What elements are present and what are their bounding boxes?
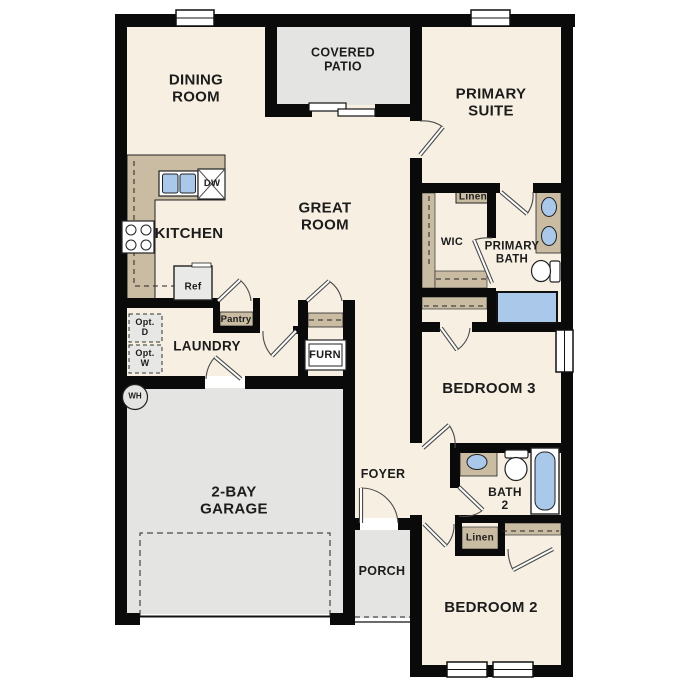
room-label-garage: 2-BAY GARAGE <box>200 485 268 518</box>
appliance-label-dishwasher: DW <box>204 179 220 189</box>
wall-wic-bath-divider <box>487 193 496 238</box>
room-label-primary-suite: PRIMARY SUITE <box>456 87 527 120</box>
kitchen-sink-fixture <box>159 171 198 196</box>
room-label-great-room: GREAT ROOM <box>299 201 352 234</box>
appliance-label-water-heater: WH <box>128 393 141 402</box>
wall-garage-stub-left <box>115 613 140 625</box>
primary-tub-fixture <box>497 292 557 323</box>
bedroom2-closet-shelf <box>500 523 561 535</box>
floor-plan-drawing <box>0 0 687 687</box>
room-label-laundry: LAUNDRY <box>173 340 241 355</box>
wall-patio-left <box>265 14 277 117</box>
stove-fixture <box>122 221 154 253</box>
window-primary-suite <box>471 10 510 26</box>
wall-pantry-bottom <box>213 326 260 333</box>
wall-bottom-bedroom2 <box>410 665 573 677</box>
wall-suite-bottom-b <box>533 183 561 193</box>
room-label-kitchen: KITCHEN <box>155 226 224 243</box>
closet-label-linen-primary: Linen <box>459 192 487 203</box>
wall-linen-right <box>498 523 505 551</box>
wall-suite-left-upper <box>410 14 422 121</box>
wic-shelf-bottom <box>435 271 487 288</box>
wall-patio-bottom-a <box>265 104 312 117</box>
room-label-covered-patio: COVERED PATIO <box>311 46 375 74</box>
bedroom3-closet-shelf <box>422 297 487 309</box>
window-bedroom2-left <box>447 662 487 677</box>
room-label-foyer: FOYER <box>361 468 406 482</box>
wall-bath2-left <box>450 443 460 488</box>
closet-label-pantry: Pantry <box>221 315 252 325</box>
room-label-bath2: BATH 2 <box>488 486 522 512</box>
appliance-label-opt-washer: Opt. W <box>135 349 154 369</box>
window-bedroom3 <box>556 330 573 372</box>
room-label-bedroom3: BEDROOM 3 <box>442 381 536 398</box>
bath2-toilet-fixture <box>505 450 528 481</box>
wall-linen-bottom <box>455 549 505 556</box>
wall-garage-stub-right <box>330 613 355 625</box>
closet-label-furnace: FURN <box>309 349 341 361</box>
appliance-label-opt-dryer: Opt. D <box>135 318 154 338</box>
bath2-sink-fixture <box>467 455 487 470</box>
window-bedroom2-right <box>493 662 533 677</box>
room-label-bedroom2: BEDROOM 2 <box>444 600 538 617</box>
wall-porch-top-b <box>398 518 422 530</box>
wall-wic-bottom <box>410 288 496 297</box>
window-dining <box>176 10 214 26</box>
closet-label-linen-hall: Linen <box>466 533 494 544</box>
bath2-tub-fixture <box>531 448 559 514</box>
wall-hall-vertical <box>410 158 422 443</box>
room-label-porch: PORCH <box>359 565 406 579</box>
room-label-wic: WIC <box>441 236 463 248</box>
wall-left <box>115 14 127 625</box>
wall-bedroom3-top-a <box>410 322 440 332</box>
wall-porch-top-a <box>343 518 360 530</box>
wall-bedroom2-left <box>410 515 422 677</box>
floor-plan: DINING ROOM COVERED PATIO PRIMARY SUITE … <box>0 0 687 687</box>
wall-linen-left <box>455 523 462 551</box>
appliance-label-refrigerator: Ref <box>184 282 201 293</box>
room-label-dining: DINING ROOM <box>169 73 223 106</box>
room-label-primary-bath: PRIMARY BATH <box>485 240 540 265</box>
